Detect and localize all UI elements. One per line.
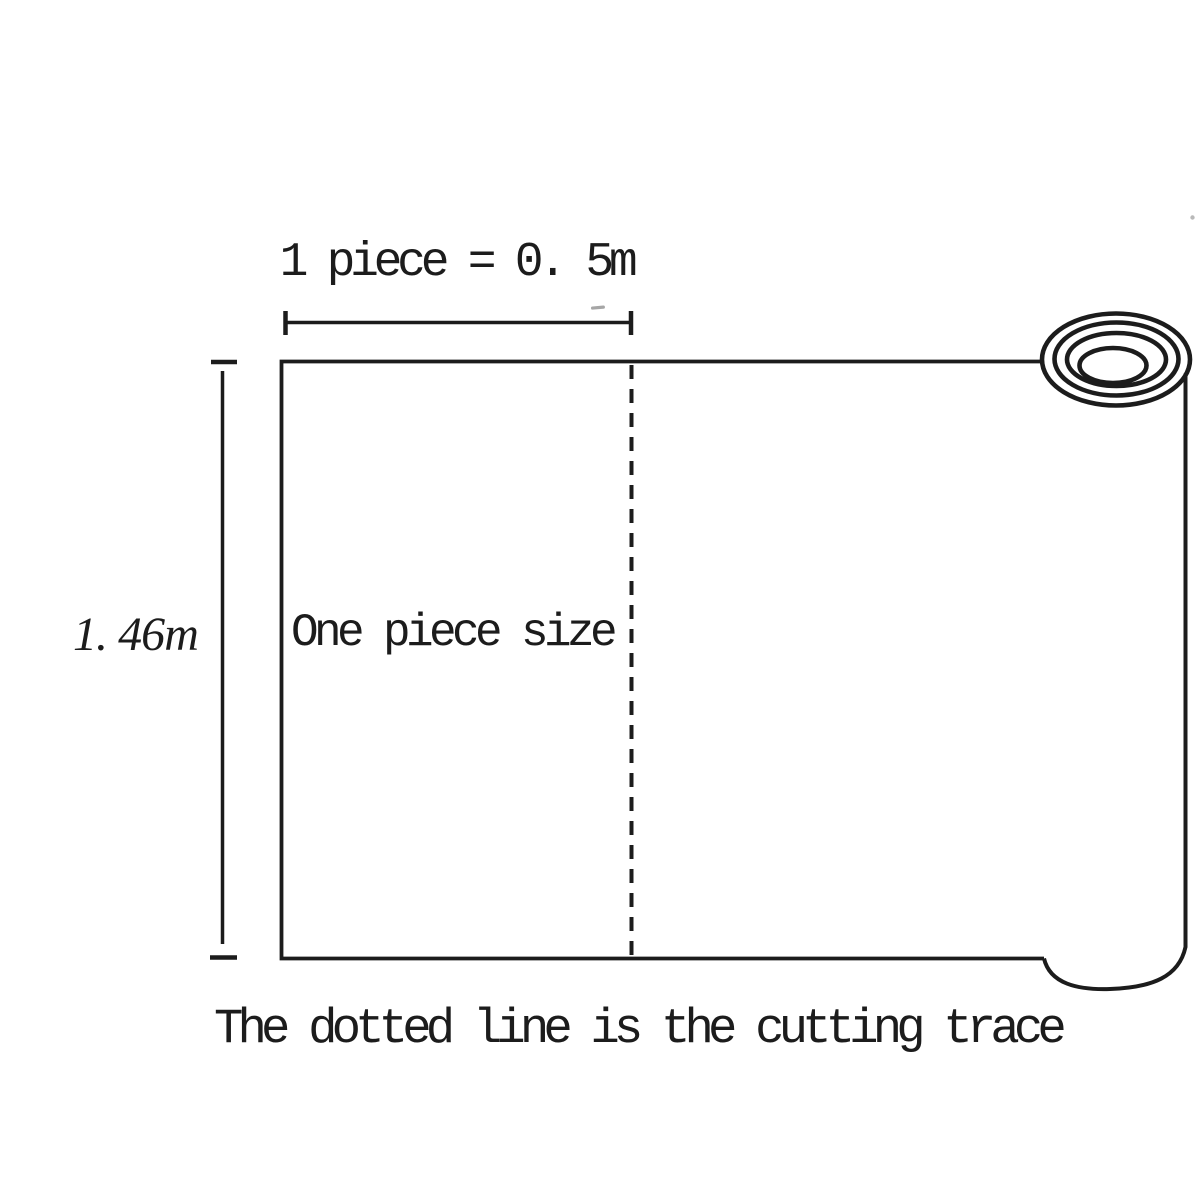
fabric-roll-end: [1042, 314, 1190, 406]
height-dimension-label: 1. 46m: [73, 611, 198, 659]
fabric-roll-diagram: 1 piece = 0. 5m 1. 46m One piece size Th…: [0, 0, 1200, 1200]
sheet-outline: [282, 362, 1045, 959]
width-dimension-line: [286, 311, 632, 335]
fabric-roll-body: [1044, 374, 1186, 990]
piece-size-label: One piece size: [291, 610, 613, 656]
artifact-marks: [591, 215, 1195, 310]
height-dimension-line: [210, 362, 237, 958]
width-dimension-label: 1 piece = 0. 5m: [276, 239, 636, 287]
cutting-trace-caption: The dotted line is the cutting trace: [214, 1005, 1061, 1054]
